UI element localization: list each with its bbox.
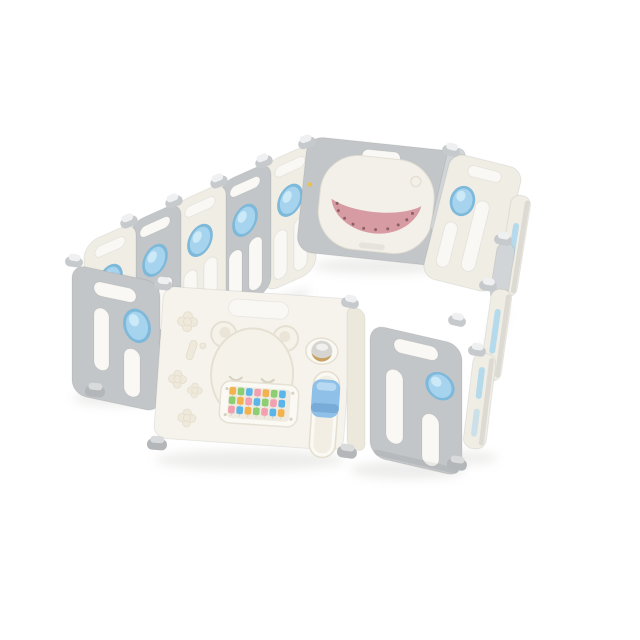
playpen-illustration [0,0,640,640]
abacus-bead [279,390,286,398]
abacus-bead [262,399,269,407]
abacus-bead [237,397,244,405]
abacus-bead [270,399,277,407]
abacus-bead [278,409,285,417]
latch-handle [310,379,341,419]
latch-handle-highlight [316,382,337,391]
product-photo-canvas [0,0,640,640]
front-right-panel-gray [370,324,462,477]
abacus-bead [271,390,278,398]
abacus-bead [269,408,276,416]
panel-slot [94,307,109,372]
hinge-knob [447,311,467,327]
abacus-bead [261,408,268,416]
hinge-knob [64,253,84,268]
abacus-bead [246,388,253,396]
panel-slot [386,368,403,446]
abacus-toy [219,380,300,427]
door-panel [153,286,354,459]
door-frame-edge [347,306,365,452]
dot-emboss [200,343,206,349]
abacus-bead [228,406,235,414]
abacus-bead [245,397,252,405]
abacus-bead [254,389,261,397]
abacus-bead [278,400,285,408]
door-handle-slot [228,299,289,320]
edge-panel-4 [462,352,497,450]
abacus-bead [236,406,243,414]
panel-slot [422,412,439,468]
panel-slot [124,347,140,398]
abacus-bead [229,387,236,395]
abacus-bead [253,398,260,406]
abacus-bead [244,407,251,415]
abacus-bead [262,389,269,397]
abacus-bead [253,407,260,415]
abacus-bead [237,387,244,395]
abacus-bead [229,396,236,404]
